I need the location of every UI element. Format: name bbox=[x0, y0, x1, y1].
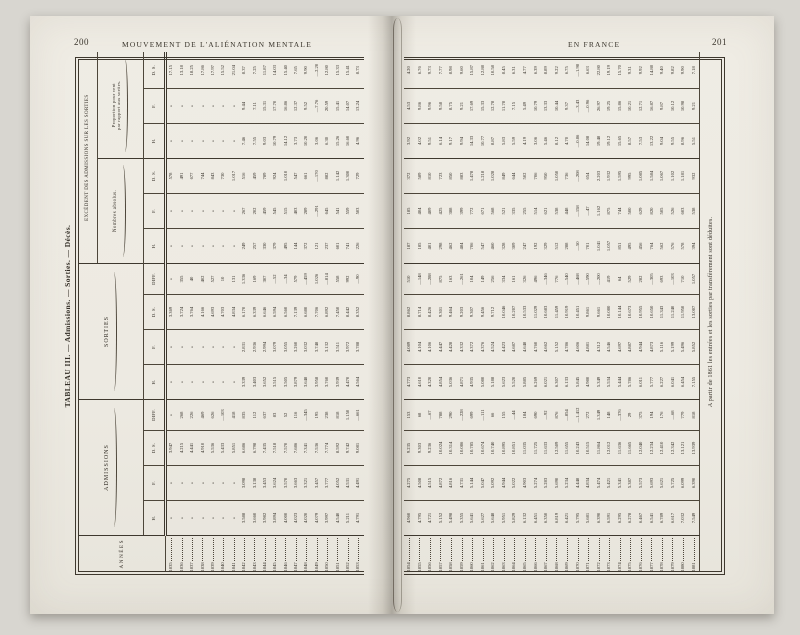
data-cell: 155 bbox=[499, 400, 510, 431]
data-cell: 5.777 bbox=[647, 365, 658, 400]
data-cell: 6.892 bbox=[322, 295, 332, 330]
data-cell: 9.51 bbox=[425, 124, 436, 159]
data-cell: —103 bbox=[668, 264, 679, 295]
dotted-leader bbox=[608, 538, 610, 561]
dotted-leader bbox=[661, 538, 663, 561]
dotted-leader bbox=[347, 538, 349, 561]
data-cell: 4.703 bbox=[218, 295, 228, 330]
data-cell: 6.686 bbox=[239, 431, 249, 466]
data-cell: 9.87 bbox=[657, 89, 668, 124]
data-cell: 835 bbox=[239, 400, 249, 431]
data-cell: 3.748 bbox=[312, 330, 322, 365]
data-cell: —52 bbox=[270, 263, 280, 294]
data-cell: 932 bbox=[689, 159, 700, 194]
data-cell: 10.314 bbox=[446, 431, 457, 466]
table-plate-left: TABLEAU III. — Admissions. — Sorties. — … bbox=[63, 57, 378, 575]
data-cell: —158 bbox=[573, 194, 584, 229]
data-cell: 418 bbox=[229, 400, 239, 431]
data-cell: —68 bbox=[668, 400, 679, 431]
data-cell: 5.211 bbox=[343, 501, 353, 536]
dotted-leader bbox=[482, 538, 484, 561]
data-cell: 7.53 bbox=[636, 124, 647, 159]
data-cell: 372 bbox=[302, 228, 312, 263]
data-cell: 6.75 bbox=[562, 53, 573, 89]
dotted-leader bbox=[201, 538, 203, 561]
data-cell: » bbox=[165, 263, 177, 294]
data-cell: 68 bbox=[415, 400, 426, 431]
data-cell: 11.950 bbox=[678, 295, 689, 330]
data-cell: » bbox=[208, 193, 218, 228]
data-cell: » bbox=[165, 88, 177, 123]
data-cell: 4.944 bbox=[636, 330, 647, 365]
data-cell: 6.295 bbox=[615, 501, 626, 536]
data-cell: 603 bbox=[678, 194, 689, 229]
data-cell: 1.300 bbox=[343, 158, 353, 193]
data-cell: » bbox=[177, 466, 187, 501]
col-header-nombres-absolus: Nombres absolus. bbox=[97, 158, 143, 263]
data-cell: 10.77 bbox=[478, 124, 489, 159]
data-cell: 194 bbox=[647, 400, 658, 431]
data-cell: 6.617 bbox=[668, 501, 679, 536]
col-header-adm-diff: DIFF. bbox=[143, 400, 165, 431]
running-head-right: EN FRANCE bbox=[568, 40, 620, 49]
data-cell: 505 bbox=[657, 194, 668, 229]
data-cell: 5.885 bbox=[520, 365, 531, 400]
data-cell: 875 bbox=[604, 194, 615, 229]
data-cell: 7.18 bbox=[689, 53, 700, 89]
table-rows-1835-1853: 1835»»3.947»»»3.369»»»578»»17.151836»»4.… bbox=[165, 52, 364, 571]
data-cell: 4.515 bbox=[425, 466, 436, 501]
data-cell: 578 bbox=[165, 158, 177, 193]
data-cell: 9.21 bbox=[457, 89, 468, 124]
data-cell: 8.73 bbox=[354, 52, 364, 88]
data-cell: 7.450 bbox=[333, 295, 343, 330]
data-cell: 3.777 bbox=[322, 466, 332, 501]
data-cell: 5.49 bbox=[520, 89, 531, 124]
data-cell: 15.52 bbox=[218, 52, 228, 88]
data-cell: » bbox=[229, 88, 239, 123]
data-cell: 3.453 bbox=[260, 466, 270, 501]
data-cell: 11.035 bbox=[520, 431, 531, 466]
data-cell: 12.342 bbox=[668, 431, 679, 466]
data-cell: 10.024 bbox=[436, 431, 447, 466]
data-cell: 876 bbox=[552, 400, 563, 431]
dotted-leader bbox=[471, 538, 473, 561]
dotted-leader bbox=[587, 538, 589, 561]
dotted-leader bbox=[408, 538, 410, 561]
data-cell: 4.854 bbox=[436, 365, 447, 400]
data-cell: 558 bbox=[333, 263, 343, 294]
data-cell: » bbox=[198, 365, 208, 400]
data-cell: 8.57 bbox=[625, 124, 636, 159]
data-cell: 5.46 bbox=[541, 124, 552, 159]
data-cell: 4.448 bbox=[573, 466, 584, 501]
data-cell: 144 bbox=[291, 228, 301, 263]
table-row: 18544.9604.2759.2351534.7734.0898.862510… bbox=[404, 53, 415, 572]
data-cell: » bbox=[229, 193, 239, 228]
data-cell: 538 bbox=[689, 194, 700, 229]
data-cell: 1.026 bbox=[312, 263, 322, 294]
year-cell: 1869 bbox=[562, 536, 573, 572]
data-cell: 6.307 bbox=[552, 365, 563, 400]
year-cell: 1877 bbox=[647, 536, 658, 572]
brace-ornament bbox=[111, 272, 117, 391]
data-cell: 5.786 bbox=[625, 365, 636, 400]
data-cell: » bbox=[229, 228, 239, 263]
data-cell: 195 bbox=[312, 400, 322, 431]
data-cell: 5.520 bbox=[509, 365, 520, 400]
data-cell: 121 bbox=[312, 228, 322, 263]
dotted-leader bbox=[264, 538, 266, 561]
table-row: 1835»»3.947»»»3.369»»»578»»17.15 bbox=[165, 52, 177, 571]
col-header-proportion: Proportion pour cent par rapport aux sor… bbox=[97, 52, 143, 158]
data-cell: 4.540 bbox=[333, 501, 343, 536]
data-cell: » bbox=[198, 228, 208, 263]
data-cell: 5.829 bbox=[509, 501, 520, 536]
col-header-adm-h: H. bbox=[143, 501, 165, 536]
year-cell: 1856 bbox=[425, 536, 436, 572]
data-cell: 419 bbox=[604, 264, 615, 295]
data-cell: 875 bbox=[436, 264, 447, 295]
table-row: 18766.4675.57312.0403756.0114.94410.9552… bbox=[636, 53, 647, 572]
data-cell: 10.673 bbox=[625, 295, 636, 330]
table-row: 18666.4515.27411.7256906.2694.76011.0294… bbox=[531, 53, 542, 572]
data-cell: 249 bbox=[239, 228, 249, 263]
data-cell: 9.081 bbox=[354, 431, 364, 466]
data-cell: 20.59 bbox=[322, 88, 332, 123]
data-cell: —228 bbox=[457, 400, 468, 431]
data-cell: » bbox=[218, 330, 228, 365]
data-cell: 1.057 bbox=[604, 229, 615, 264]
col-header-abs-f: F. bbox=[143, 193, 165, 228]
data-cell: 3.879 bbox=[291, 365, 301, 400]
data-cell: 268 bbox=[177, 400, 187, 431]
table-row: 18656.1324.90311.0351845.8854.64810.5333… bbox=[520, 53, 531, 572]
data-cell: 4.721 bbox=[425, 501, 436, 536]
data-cell: » bbox=[218, 193, 228, 228]
data-cell: —67 bbox=[425, 400, 436, 431]
data-cell: 83 bbox=[270, 400, 280, 431]
data-cell: 11.655 bbox=[562, 431, 573, 466]
data-cell: 15.33 bbox=[333, 52, 343, 88]
data-cell: 9.44 bbox=[239, 88, 249, 123]
data-cell: —345 bbox=[302, 400, 312, 431]
year-cell: 1876 bbox=[636, 536, 647, 572]
year-cell: 1866 bbox=[531, 536, 542, 572]
data-cell: » bbox=[187, 193, 197, 228]
table-row: 18443.9823.4537.4356373.6522.9946.646307… bbox=[260, 52, 270, 571]
data-cell: 5.534 bbox=[604, 365, 615, 400]
data-cell: 4.089 bbox=[404, 330, 415, 365]
data-cell: 10 bbox=[218, 263, 228, 294]
data-cell: —288 bbox=[425, 264, 436, 295]
data-cell: 6.021 bbox=[541, 365, 552, 400]
data-cell: 5.092 bbox=[488, 466, 499, 501]
data-cell: 238 bbox=[322, 400, 332, 431]
col-header-adm-f: F. bbox=[143, 466, 165, 501]
data-cell: 995 bbox=[625, 159, 636, 194]
data-cell: 4.447 bbox=[436, 330, 447, 365]
data-cell: 4.795 bbox=[415, 501, 426, 536]
year-cell: 1867 bbox=[541, 536, 552, 572]
data-cell: 372 bbox=[404, 159, 415, 194]
data-cell: 3.958 bbox=[312, 365, 322, 400]
data-cell: 6.390 bbox=[689, 466, 700, 501]
data-cell: 17.70 bbox=[270, 88, 280, 123]
data-cell: 307 bbox=[260, 263, 270, 294]
data-cell: 1.050 bbox=[552, 159, 563, 194]
data-cell: » bbox=[187, 228, 197, 263]
year-cell: 1842 bbox=[239, 536, 249, 572]
data-cell: 9.22 bbox=[552, 53, 563, 89]
data-cell: » bbox=[208, 88, 218, 123]
data-cell: » bbox=[187, 330, 197, 365]
year-cell: 1864 bbox=[509, 536, 520, 572]
data-cell: » bbox=[187, 466, 197, 501]
dotted-leader bbox=[284, 538, 286, 561]
data-cell: 9.303 bbox=[415, 431, 426, 466]
data-cell: 460 bbox=[488, 229, 499, 264]
statistics-table-right: 18544.9604.2759.2351534.7734.0898.862510… bbox=[404, 53, 721, 572]
data-cell: 9.235 bbox=[404, 431, 415, 466]
data-cell: 11.636 bbox=[615, 431, 626, 466]
data-cell: 7.46 bbox=[239, 123, 249, 158]
data-cell: —208 bbox=[573, 159, 584, 194]
data-cell: 185 bbox=[415, 229, 426, 264]
data-cell: 645 bbox=[322, 193, 332, 228]
data-cell: 5.621 bbox=[657, 466, 668, 501]
data-cell: 538 bbox=[552, 194, 563, 229]
data-cell: » bbox=[165, 501, 177, 536]
data-cell: 19.48 bbox=[594, 124, 605, 159]
data-cell: —261 bbox=[457, 264, 468, 295]
data-cell: 741 bbox=[343, 228, 353, 263]
data-cell: 1.336 bbox=[239, 263, 249, 294]
data-cell: » bbox=[187, 365, 197, 400]
data-cell: 883 bbox=[457, 159, 468, 194]
table-footnote: A partir de 1861 les entrées et les sort… bbox=[700, 53, 722, 572]
data-cell: 495 bbox=[625, 229, 636, 264]
data-cell: 6.451 bbox=[531, 501, 542, 536]
data-cell: 4.079 bbox=[312, 501, 322, 536]
data-cell: 559 bbox=[343, 193, 353, 228]
data-cell: 3.947 bbox=[165, 431, 177, 466]
data-cell: 3.760 bbox=[322, 365, 332, 400]
data-cell: 202 bbox=[250, 193, 260, 228]
data-cell: 6.350 bbox=[541, 501, 552, 536]
data-cell: —92 bbox=[541, 400, 552, 431]
data-cell: 3.132 bbox=[322, 330, 332, 365]
dotted-leader bbox=[650, 538, 652, 561]
table-row: 18605.6415.14410.7856994.9354.3729.30710… bbox=[467, 53, 478, 572]
data-cell: —47 bbox=[583, 194, 594, 229]
data-cell: 399 bbox=[457, 194, 468, 229]
dotted-leader bbox=[503, 538, 505, 561]
data-cell: 4.564 bbox=[354, 365, 364, 400]
year-cell: 1872 bbox=[594, 536, 605, 572]
data-cell: —376 bbox=[615, 400, 626, 431]
data-cell: 17.15 bbox=[165, 52, 177, 88]
table-row: 18635.9514.94410.8951555.6234.42310.0463… bbox=[499, 53, 510, 572]
data-cell: 3.505 bbox=[281, 365, 291, 400]
data-cell: 5.080 bbox=[478, 365, 489, 400]
data-cell: 4.275 bbox=[404, 466, 415, 501]
dotted-leader bbox=[693, 538, 695, 561]
data-cell: 644 bbox=[509, 159, 520, 194]
data-cell: 6.541 bbox=[647, 501, 658, 536]
data-cell: 3.032 bbox=[302, 330, 312, 365]
data-cell: 10.046 bbox=[499, 295, 510, 330]
data-cell: 4.19 bbox=[520, 124, 531, 159]
data-cell: 8.426 bbox=[425, 295, 436, 330]
data-cell: 9.96 bbox=[425, 89, 436, 124]
data-cell: 21.04 bbox=[229, 52, 239, 88]
table-row: 1839»»5.536626»»4.693527»»843»»17.97 bbox=[208, 52, 218, 571]
data-cell: 9.82 bbox=[668, 53, 679, 89]
data-cell: 267 bbox=[239, 193, 249, 228]
data-cell: 5.152 bbox=[552, 330, 563, 365]
data-cell: 2.831 bbox=[239, 330, 249, 365]
data-cell: 14.03 bbox=[270, 52, 280, 88]
data-cell: 226 bbox=[354, 228, 364, 263]
data-cell: 8.714 bbox=[415, 295, 426, 330]
data-cell: 10.451 bbox=[573, 295, 584, 330]
data-cell: 5.474 bbox=[594, 466, 605, 501]
data-cell: 3.92 bbox=[404, 124, 415, 159]
data-cell: 496 bbox=[531, 264, 542, 295]
data-cell: 562 bbox=[657, 229, 668, 264]
data-cell: 744 bbox=[615, 194, 626, 229]
data-cell: 526 bbox=[668, 194, 679, 229]
data-cell: 4.773 bbox=[404, 365, 415, 400]
table-row: 1837»»4.441226»»3.76440»»677»»18.25 bbox=[187, 52, 197, 571]
data-cell: 3.515 bbox=[270, 365, 280, 400]
year-cell: 1860 bbox=[467, 536, 478, 572]
data-cell: 510 bbox=[404, 264, 415, 295]
data-cell: 8.442 bbox=[343, 295, 353, 330]
data-cell: 6.39 bbox=[531, 53, 542, 89]
data-cell: 6.646 bbox=[260, 295, 270, 330]
data-cell: 5.852 bbox=[689, 330, 700, 365]
data-cell: 4.935 bbox=[467, 365, 478, 400]
data-cell: 495 bbox=[281, 228, 291, 263]
data-cell: 6.390 bbox=[594, 501, 605, 536]
data-cell: 9.04 bbox=[657, 124, 668, 159]
data-cell: 626 bbox=[208, 400, 218, 431]
dotted-leader bbox=[212, 538, 214, 561]
data-cell: 9.236 bbox=[425, 431, 436, 466]
data-cell: » bbox=[177, 365, 187, 400]
col-header-prop-h: H. bbox=[143, 123, 165, 158]
data-cell: 3.079 bbox=[270, 330, 280, 365]
data-cell: » bbox=[165, 228, 177, 263]
data-cell: —170 bbox=[312, 158, 322, 193]
data-cell: 10.955 bbox=[636, 295, 647, 330]
data-cell: 402 bbox=[198, 263, 208, 294]
data-cell: 5.51 bbox=[689, 124, 700, 159]
data-cell: 4.697 bbox=[615, 330, 626, 365]
data-cell: 3.055 bbox=[281, 330, 291, 365]
data-cell: 706 bbox=[467, 229, 478, 264]
data-cell: 15.26 bbox=[333, 123, 343, 158]
data-cell: —44 bbox=[509, 400, 520, 431]
data-cell: 7.341 bbox=[302, 431, 312, 466]
table-row: 18453.8943.6247.518833.5153.0796.594—523… bbox=[270, 52, 280, 571]
table-row: 1840»»5.433—103»»4.70310»»730»»15.52 bbox=[218, 52, 228, 571]
data-cell: 5.341 bbox=[615, 466, 626, 501]
dotted-leader bbox=[295, 538, 297, 561]
data-cell: 5.795 bbox=[573, 501, 584, 536]
data-cell: 10.79 bbox=[531, 89, 542, 124]
data-cell: 4.106 bbox=[425, 330, 436, 365]
data-cell: 288 bbox=[562, 229, 573, 264]
data-cell: 779 bbox=[678, 400, 689, 431]
data-cell: 851 bbox=[615, 229, 626, 264]
year-cell: 1850 bbox=[322, 536, 332, 572]
col-header-sort-ds: D. S. bbox=[143, 295, 165, 330]
data-cell: 1.595 bbox=[615, 159, 626, 194]
data-cell: 459 bbox=[260, 193, 270, 228]
data-cell: 2.994 bbox=[260, 330, 270, 365]
data-cell: —590 bbox=[583, 264, 594, 295]
data-cell: 149 bbox=[478, 264, 489, 295]
data-cell: 112 bbox=[250, 400, 260, 431]
data-cell: 388 bbox=[446, 194, 457, 229]
data-cell: 6.041 bbox=[668, 365, 679, 400]
dotted-leader bbox=[316, 538, 318, 561]
data-cell: 7.032 bbox=[678, 501, 689, 536]
data-cell: 448 bbox=[562, 194, 573, 229]
dotted-leader bbox=[222, 538, 224, 561]
year-cell: 1861 bbox=[478, 536, 489, 572]
data-cell: 10.674 bbox=[478, 431, 489, 466]
data-cell: 5.851 bbox=[229, 431, 239, 466]
data-cell: 9.94 bbox=[457, 124, 468, 159]
data-cell: 8.12 bbox=[552, 124, 563, 159]
data-cell: 4.872 bbox=[436, 466, 447, 501]
data-cell: 4.610 bbox=[415, 365, 426, 400]
data-cell: » bbox=[165, 193, 177, 228]
table-row: 18514.5404.0528.5928183.9393.5117.450558… bbox=[333, 52, 343, 571]
data-cell: 5.725 bbox=[668, 466, 679, 501]
year-cell: 1851 bbox=[333, 536, 343, 572]
data-cell: 9.92 bbox=[636, 53, 647, 89]
data-cell: 4.760 bbox=[531, 330, 542, 365]
data-cell: 12.012 bbox=[604, 431, 615, 466]
dotted-leader bbox=[513, 538, 515, 561]
data-cell: 820 bbox=[647, 194, 658, 229]
year-cell: 1863 bbox=[499, 536, 510, 572]
data-cell: 4.881 bbox=[583, 330, 594, 365]
col-header-sort-diff: DIFF. bbox=[143, 263, 165, 294]
data-cell: 730 bbox=[218, 158, 228, 193]
gutter-fold-line bbox=[393, 18, 402, 612]
data-cell: 4.312 bbox=[594, 330, 605, 365]
data-cell: 3.098 bbox=[239, 466, 249, 501]
data-cell: 9.21 bbox=[689, 89, 700, 124]
year-cell: 1852 bbox=[343, 536, 353, 572]
data-cell: 1.028 bbox=[488, 159, 499, 194]
data-cell: 15.33 bbox=[478, 89, 489, 124]
data-cell: 18.25 bbox=[187, 52, 197, 88]
table-row: 18756.2785.38711.665295.7864.88710.67352… bbox=[625, 53, 636, 572]
dotted-leader bbox=[181, 538, 183, 561]
data-cell: 257 bbox=[250, 228, 260, 263]
table-row: 18494.0793.4577.5361953.9583.7487.7061.0… bbox=[312, 52, 322, 571]
data-cell: 4.166 bbox=[198, 295, 208, 330]
data-cell: 6.14 bbox=[436, 124, 447, 159]
data-cell: 3.06 bbox=[312, 123, 322, 158]
